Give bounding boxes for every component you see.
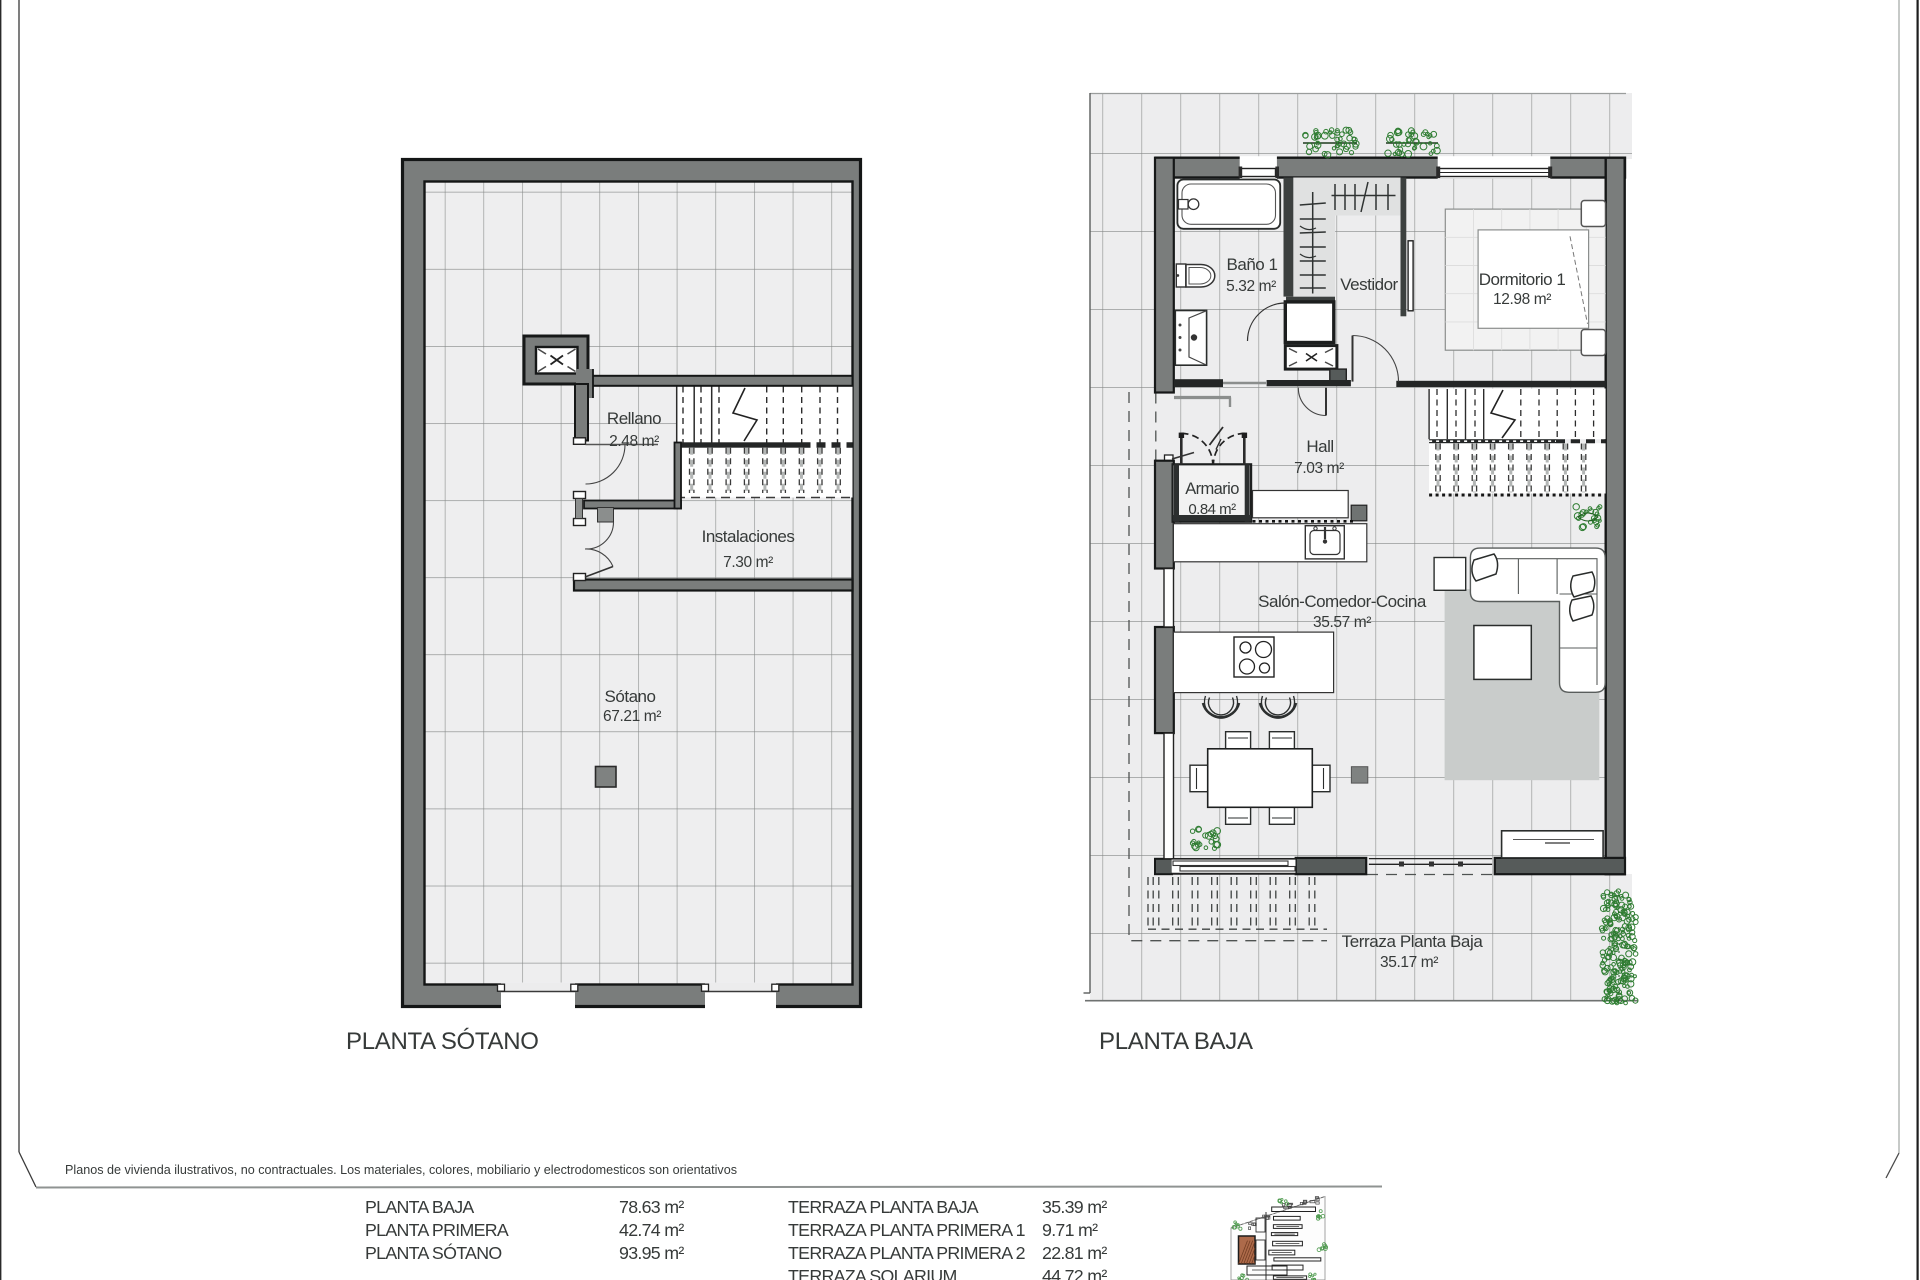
svg-text:7.03 m²: 7.03 m² xyxy=(1294,460,1344,477)
svg-text:2.48 m²: 2.48 m² xyxy=(609,433,659,450)
svg-text:93.95 m²: 93.95 m² xyxy=(619,1243,684,1263)
svg-text:Instalaciones: Instalaciones xyxy=(702,527,795,546)
svg-text:TERRAZA SOLARIUM: TERRAZA SOLARIUM xyxy=(788,1266,957,1280)
svg-text:78.63 m²: 78.63 m² xyxy=(619,1197,684,1217)
svg-text:Dormitorio 1: Dormitorio 1 xyxy=(1479,270,1566,289)
svg-text:PLANTA SÓTANO: PLANTA SÓTANO xyxy=(346,1028,539,1055)
svg-text:7.30 m²: 7.30 m² xyxy=(723,554,773,571)
svg-text:35.39 m²: 35.39 m² xyxy=(1042,1197,1107,1217)
svg-text:35.17 m²: 35.17 m² xyxy=(1380,954,1438,971)
svg-text:42.74 m²: 42.74 m² xyxy=(619,1220,684,1240)
svg-text:5.32 m²: 5.32 m² xyxy=(1226,278,1276,295)
svg-text:PLANTA BAJA: PLANTA BAJA xyxy=(1099,1028,1253,1055)
svg-text:PLANTA BAJA: PLANTA BAJA xyxy=(365,1197,474,1217)
svg-text:12.98 m²: 12.98 m² xyxy=(1493,291,1551,308)
svg-text:TERRAZA PLANTA BAJA: TERRAZA PLANTA BAJA xyxy=(788,1197,979,1217)
svg-text:67.21 m²: 67.21 m² xyxy=(603,708,661,725)
svg-text:PLANTA PRIMERA: PLANTA PRIMERA xyxy=(365,1220,509,1240)
svg-text:Baño 1: Baño 1 xyxy=(1227,255,1278,274)
svg-text:Armario: Armario xyxy=(1185,480,1239,498)
svg-text:35.57 m²: 35.57 m² xyxy=(1313,614,1371,631)
svg-text:9.71 m²: 9.71 m² xyxy=(1042,1220,1098,1240)
svg-text:Sótano: Sótano xyxy=(605,687,656,706)
svg-text:TERRAZA PLANTA PRIMERA 1: TERRAZA PLANTA PRIMERA 1 xyxy=(788,1220,1026,1240)
svg-text:TERRAZA PLANTA PRIMERA 2: TERRAZA PLANTA PRIMERA 2 xyxy=(788,1243,1025,1263)
svg-text:Salón-Comedor-Cocina: Salón-Comedor-Cocina xyxy=(1258,592,1427,611)
svg-text:Rellano: Rellano xyxy=(607,409,661,428)
svg-text:Terraza Planta Baja: Terraza Planta Baja xyxy=(1342,932,1484,951)
svg-text:0.84 m²: 0.84 m² xyxy=(1188,501,1236,518)
svg-text:22.81 m²: 22.81 m² xyxy=(1042,1243,1107,1263)
svg-text:Hall: Hall xyxy=(1306,437,1333,456)
svg-text:PLANTA SÓTANO: PLANTA SÓTANO xyxy=(365,1242,501,1263)
svg-text:Planos de vivienda ilustrativo: Planos de vivienda ilustrativos, no cont… xyxy=(65,1163,737,1177)
svg-text:44.72 m²: 44.72 m² xyxy=(1042,1266,1107,1280)
svg-text:Vestidor: Vestidor xyxy=(1340,275,1398,294)
